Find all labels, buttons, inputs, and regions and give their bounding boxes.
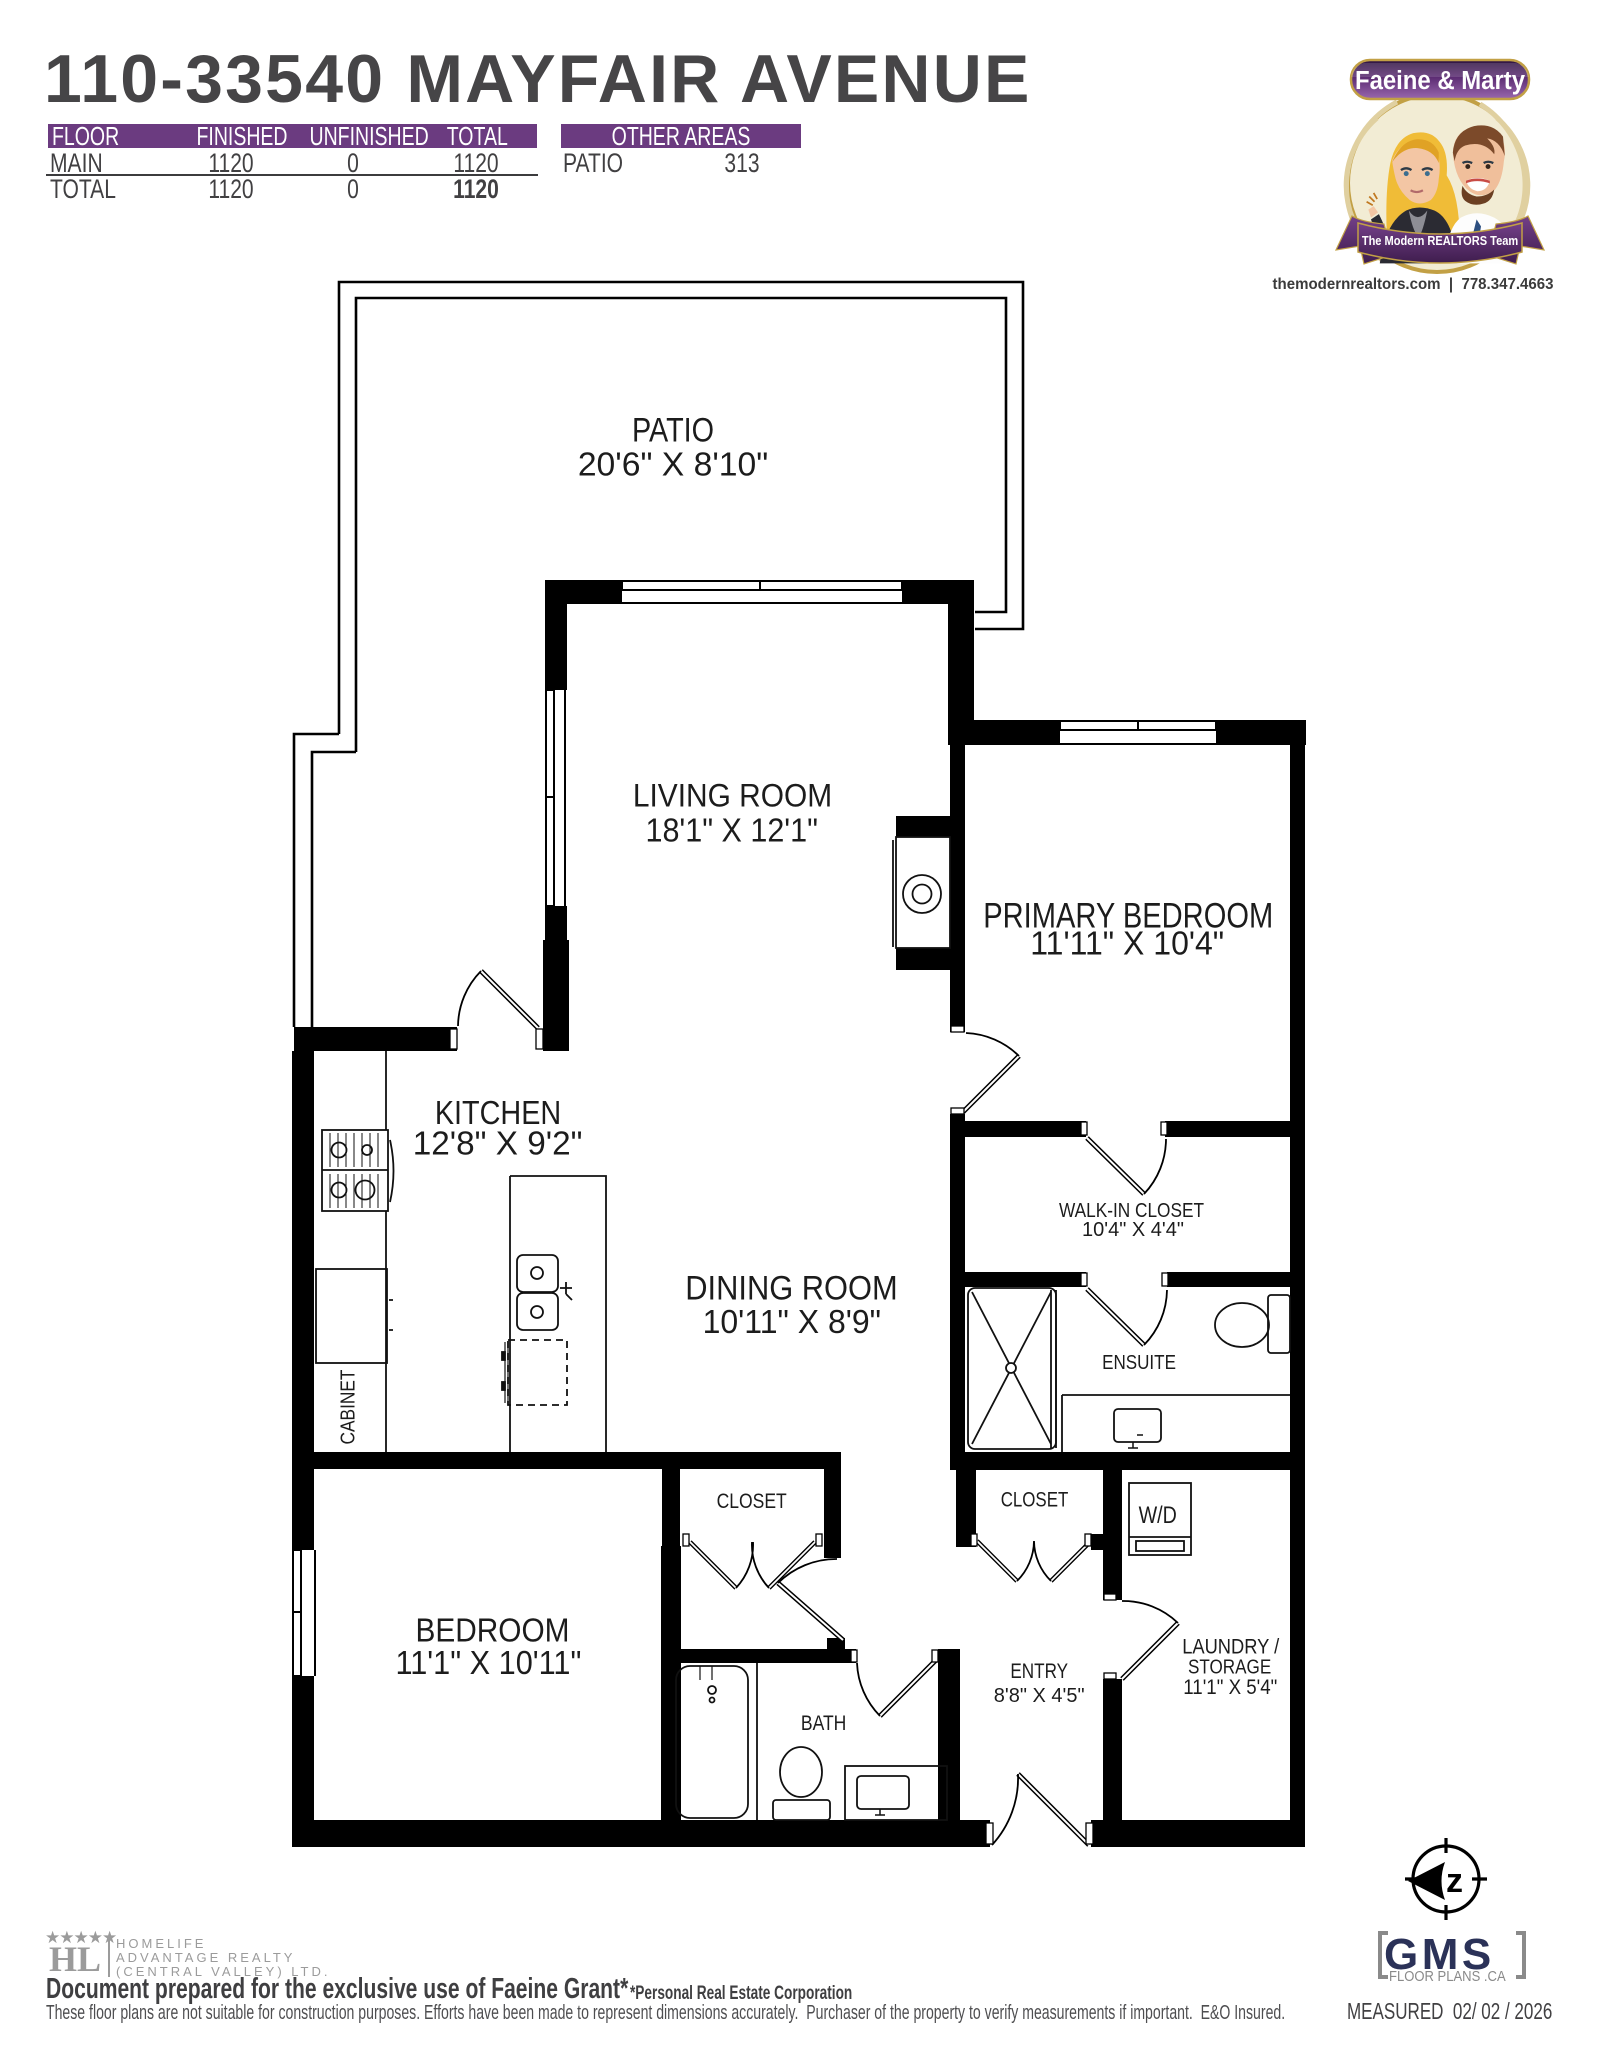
svg-text:FLOOR PLANS .CA: FLOOR PLANS .CA bbox=[1389, 1967, 1506, 1984]
svg-text:10'4" X 4'4": 10'4" X 4'4" bbox=[1082, 1219, 1184, 1241]
svg-text:CLOSET: CLOSET bbox=[1001, 1489, 1069, 1512]
svg-text:BATH: BATH bbox=[801, 1711, 846, 1735]
svg-text:CABINET: CABINET bbox=[337, 1369, 360, 1444]
svg-text:The Modern REALTORS Team: The Modern REALTORS Team bbox=[1362, 233, 1518, 248]
svg-text:W/D: W/D bbox=[1139, 1501, 1177, 1528]
svg-text:PATIO: PATIO bbox=[632, 410, 714, 449]
svg-text:12'8" X 9'2": 12'8" X 9'2" bbox=[413, 1126, 583, 1163]
svg-text:HOMELIFE: HOMELIFE bbox=[116, 1936, 206, 1951]
svg-text:ADVANTAGE REALTY: ADVANTAGE REALTY bbox=[116, 1950, 295, 1965]
svg-text:DINING ROOM: DINING ROOM bbox=[685, 1269, 897, 1307]
svg-text:11'1" X 5'4": 11'1" X 5'4" bbox=[1183, 1676, 1277, 1699]
svg-text:18'1" X 12'1": 18'1" X 12'1" bbox=[645, 811, 817, 848]
svg-text:ENTRY: ENTRY bbox=[1010, 1659, 1068, 1683]
svg-text:10'11" X 8'9": 10'11" X 8'9" bbox=[703, 1304, 881, 1341]
svg-text:11'1" X 10'11": 11'1" X 10'11" bbox=[395, 1644, 581, 1681]
svg-text:LIVING ROOM: LIVING ROOM bbox=[633, 777, 832, 813]
svg-text:WALK-IN CLOSET: WALK-IN CLOSET bbox=[1059, 1199, 1204, 1222]
svg-text:z: z bbox=[1446, 1862, 1463, 1900]
svg-text:Faeine & Marty: Faeine & Marty bbox=[1355, 66, 1525, 95]
svg-text:8'8" X 4'5": 8'8" X 4'5" bbox=[994, 1685, 1085, 1707]
svg-text:ENSUITE: ENSUITE bbox=[1102, 1351, 1176, 1374]
svg-text:20'6" X 8'10": 20'6" X 8'10" bbox=[578, 446, 768, 484]
svg-text:CLOSET: CLOSET bbox=[717, 1489, 787, 1513]
svg-text:11'11" X 10'4": 11'11" X 10'4" bbox=[1030, 925, 1224, 962]
